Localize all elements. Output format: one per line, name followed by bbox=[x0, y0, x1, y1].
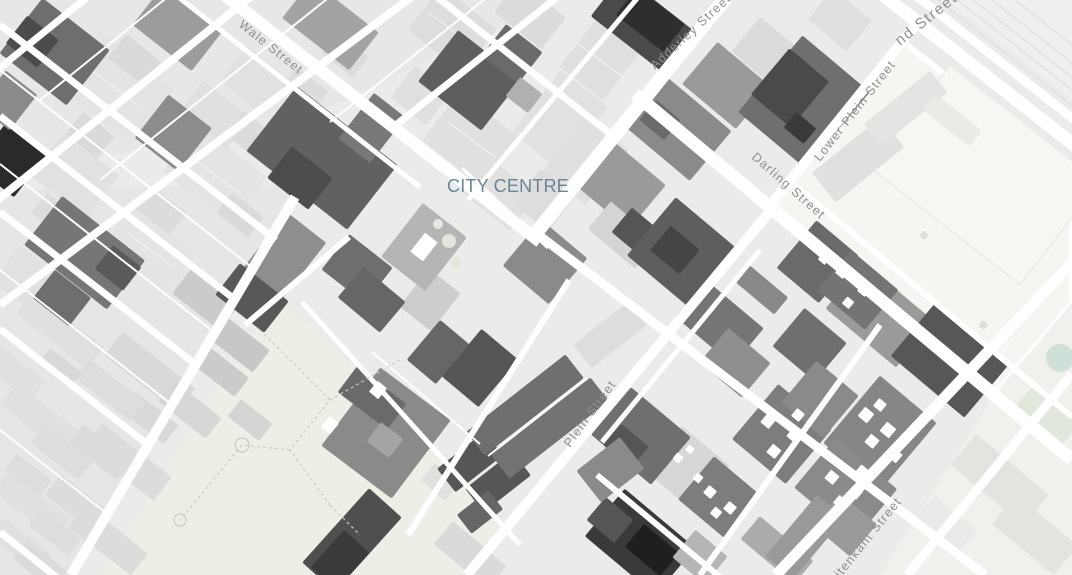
svg-text:CITY CENTRE: CITY CENTRE bbox=[447, 176, 569, 196]
